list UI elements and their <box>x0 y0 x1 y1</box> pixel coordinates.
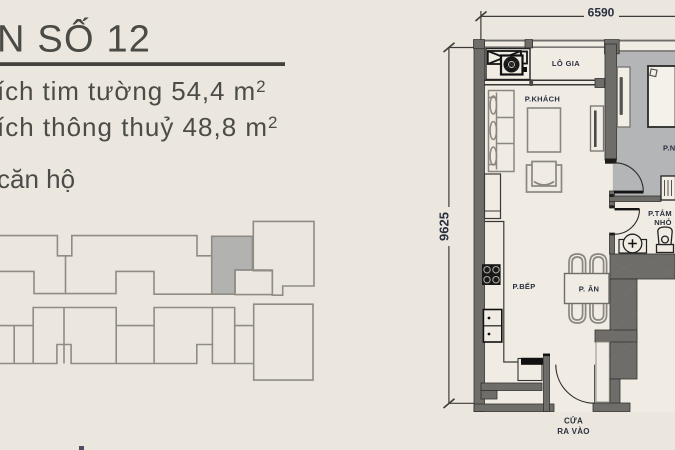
svg-text:CỬA: CỬA <box>564 417 583 426</box>
svg-text:P.NGỦ: P.NGỦ <box>663 144 675 153</box>
svg-text:N SỐ 12: N SỐ 12 <box>0 16 151 61</box>
svg-text:P.BẾP: P.BẾP <box>512 281 535 291</box>
svg-text:P.KHÁCH: P.KHÁCH <box>525 95 560 104</box>
svg-text:RA VÀO: RA VÀO <box>557 427 590 436</box>
svg-text:ích thông thuỷ 48,8 m2: ích thông thuỷ 48,8 m2 <box>0 112 279 142</box>
svg-text:NHỎ: NHỎ <box>654 218 672 227</box>
svg-text:P.TẮM: P.TẮM <box>648 209 672 218</box>
svg-text:LÔ GIA: LÔ GIA <box>552 59 580 68</box>
svg-text:9625: 9625 <box>436 212 451 241</box>
svg-text:căn hộ: căn hộ <box>0 164 75 194</box>
svg-text:P. ĂN: P. ĂN <box>579 285 600 294</box>
svg-text:ích tim tường 54,4 m2: ích tim tường 54,4 m2 <box>0 76 266 106</box>
svg-text:6590: 6590 <box>588 6 615 20</box>
